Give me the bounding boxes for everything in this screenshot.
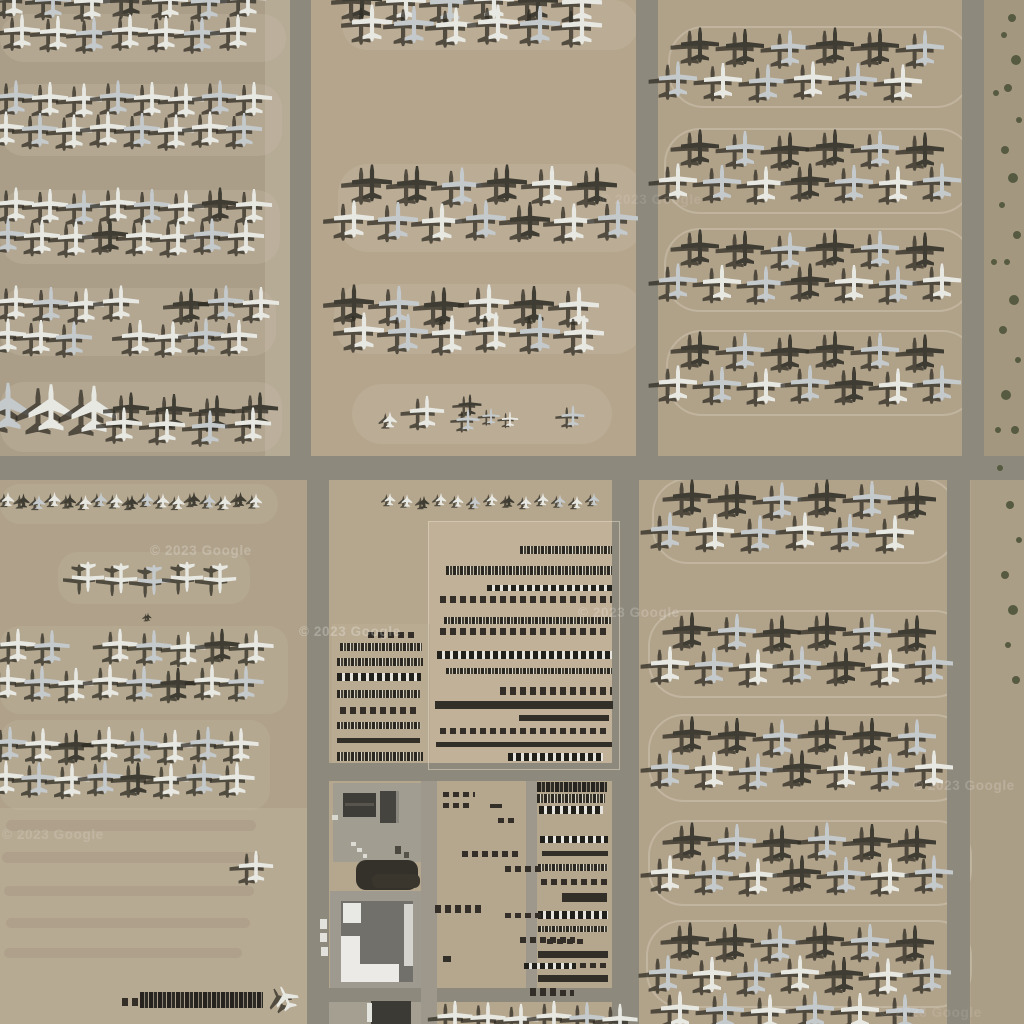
aircraft-layer bbox=[0, 0, 1024, 1024]
satellite-map[interactable]: © 2023 Google© 2023 Google© 2023 Google©… bbox=[0, 0, 1024, 1024]
